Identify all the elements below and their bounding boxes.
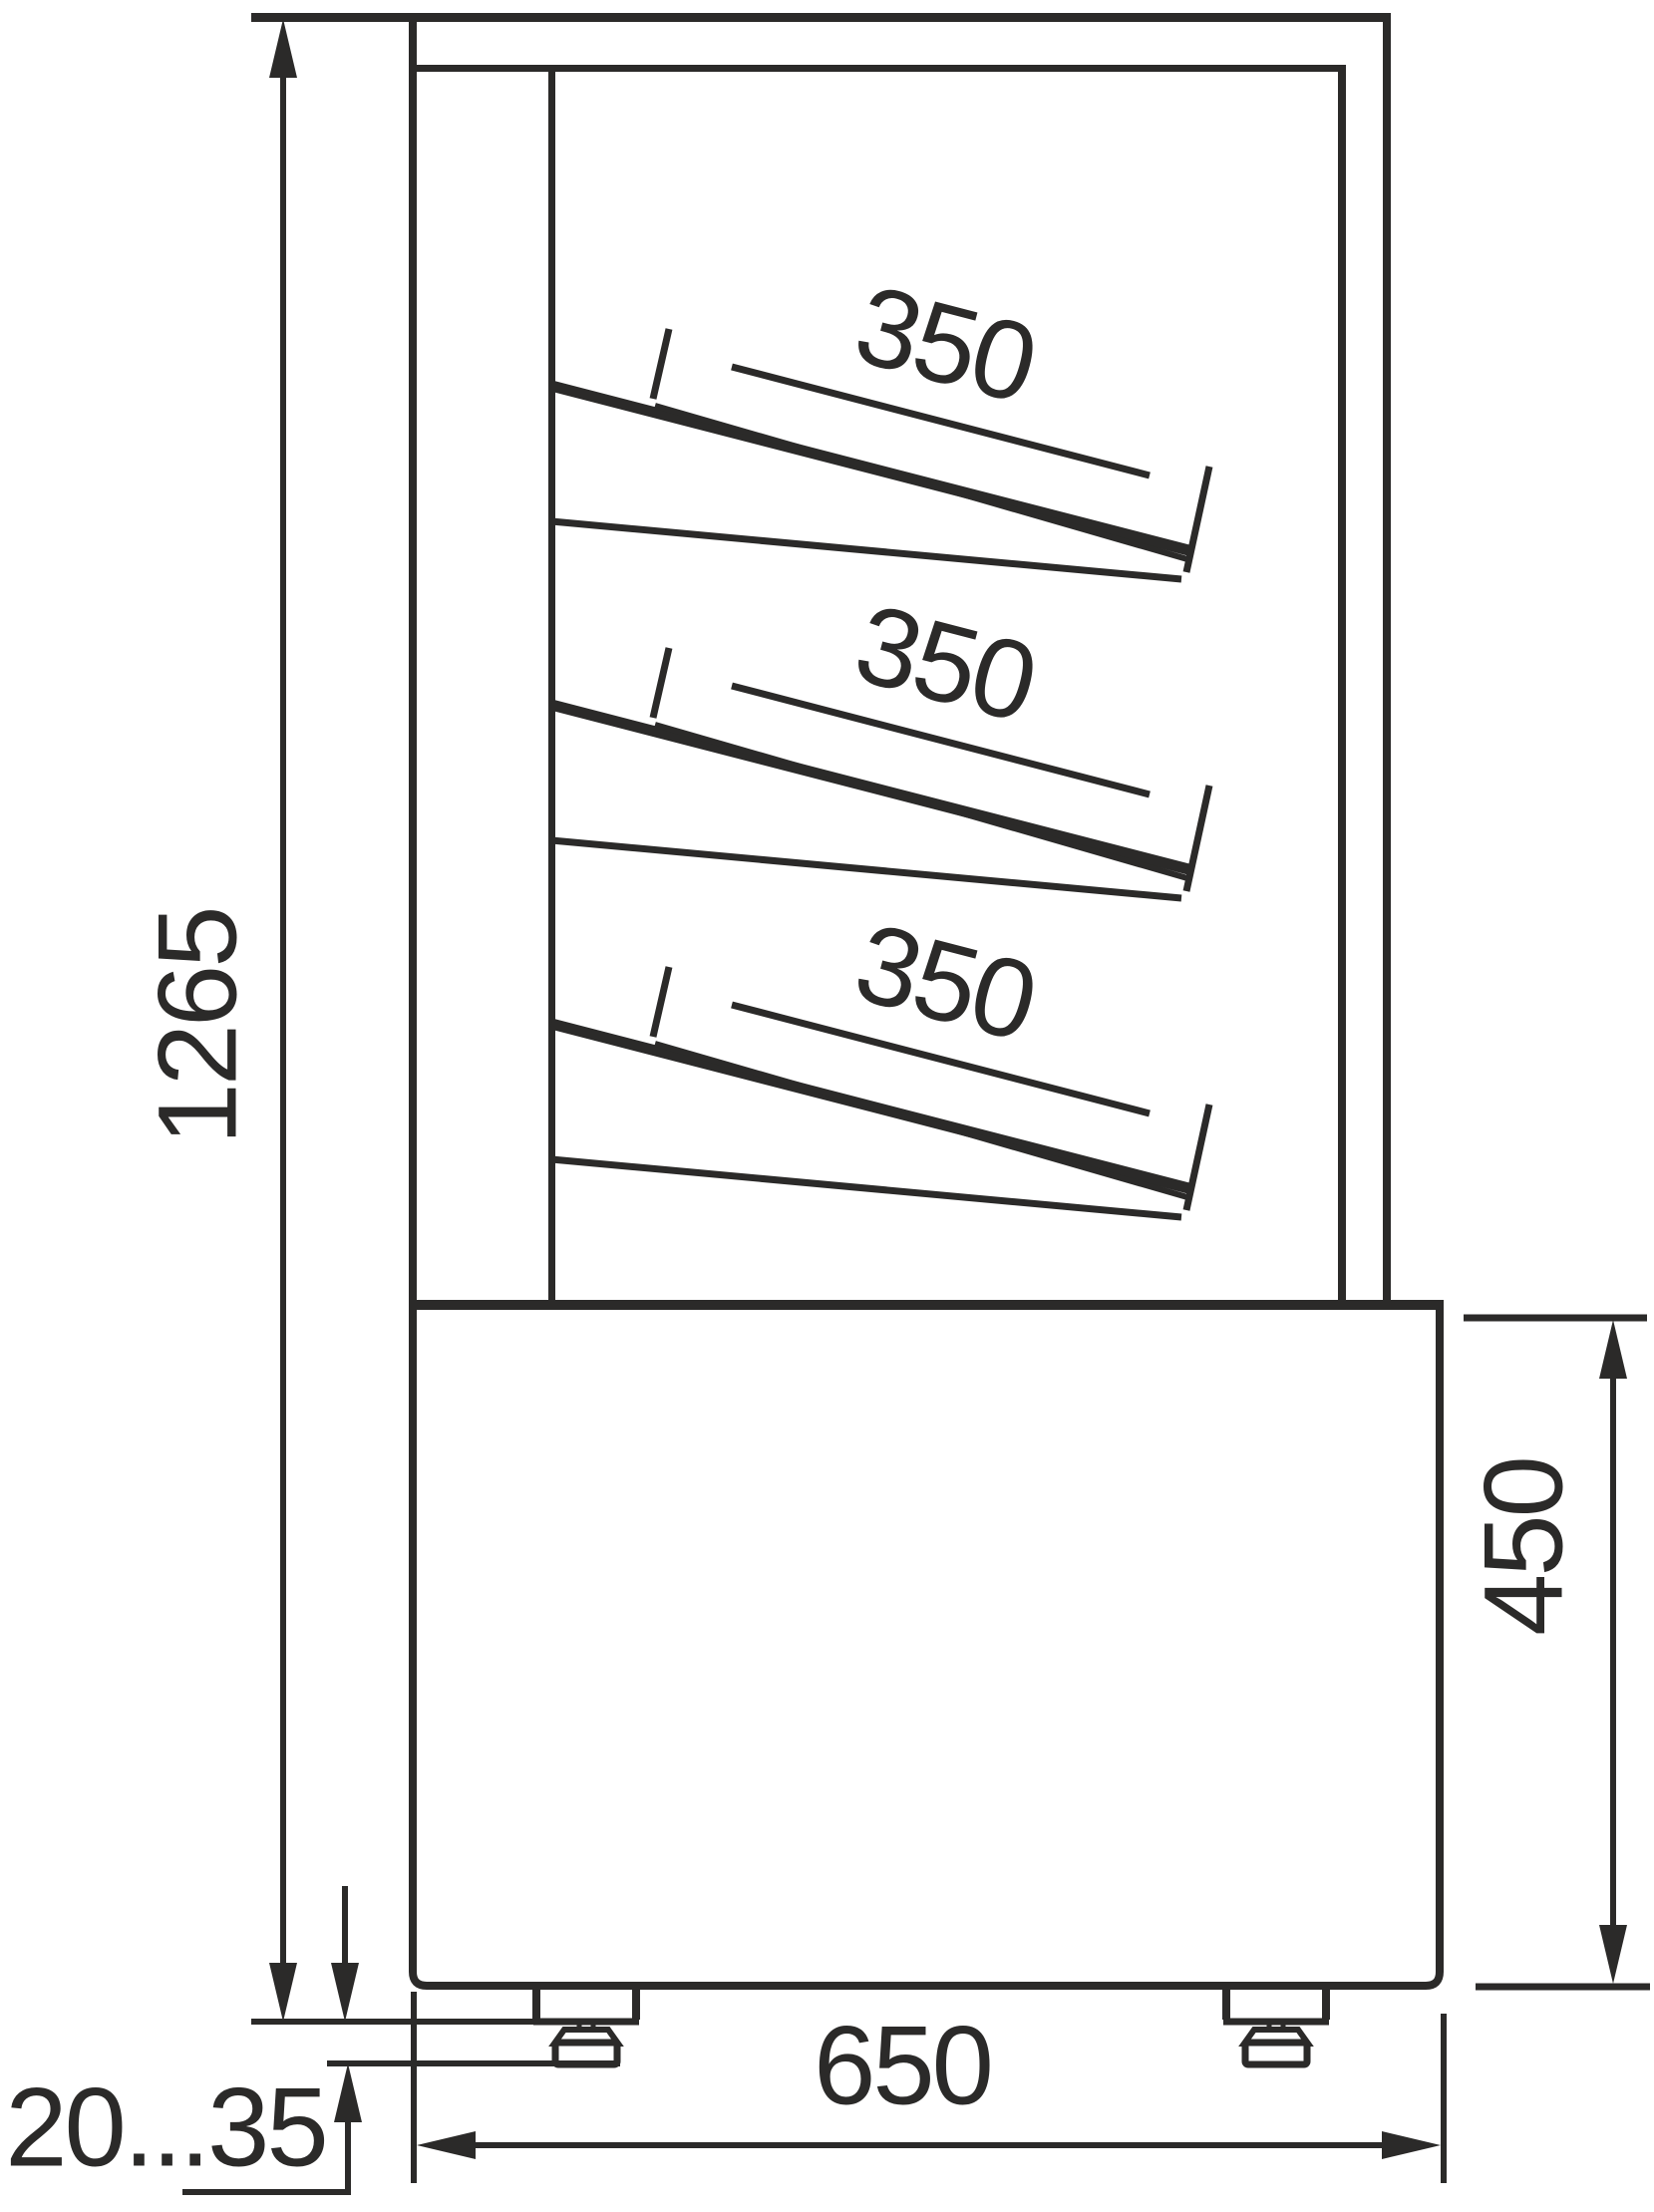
dim-base-depth-arrow-left — [417, 2131, 476, 2159]
dim-base-depth-arrow-right — [1382, 2131, 1441, 2159]
dim-base-height: 450 — [1462, 1318, 1651, 1987]
dim-overall-height-arrow-up — [269, 19, 297, 78]
dim-foot-adjustment-arrow-up — [334, 2063, 362, 2122]
shelf-3-dim-tick-right — [1186, 1105, 1209, 1210]
dim-overall-height-arrow-down — [269, 1963, 297, 2022]
shelf-2-dim-tick-left — [653, 648, 669, 718]
base-cabinet-outline — [413, 1306, 1440, 1986]
adjustable-foot-left — [533, 1988, 639, 2064]
shelf-2-dim-tick-right — [1186, 786, 1209, 891]
overall-height-label: 1265 — [136, 908, 260, 1144]
dim-base-height-arrow-up — [1599, 1320, 1627, 1379]
dim-foot-adjustment-arrow-down — [331, 1963, 359, 2022]
base-depth-label: 650 — [814, 2004, 991, 2128]
dim-base-height-arrow-down — [1599, 1925, 1627, 1984]
cabinet-upper-section — [251, 13, 1391, 1305]
shelf-1-dim-tick-right — [1186, 467, 1209, 572]
shelf-1-dim-tick-left — [653, 329, 669, 399]
adjustable-foot-right — [1223, 1988, 1329, 2064]
shelf-1: 350 — [551, 261, 1209, 579]
display-case-drawing-canvas: 350 350 350 — [0, 0, 1654, 2212]
shelf-3: 350 — [551, 899, 1209, 1217]
shelf-2: 350 — [551, 580, 1209, 898]
shelf-3-dim-tick-left — [653, 967, 669, 1037]
base-cabinet — [409, 1305, 1444, 1986]
dimension-drawing-page: 350 350 350 — [0, 0, 1654, 2212]
foot-adjustment-label: 20...35 — [5, 2065, 326, 2190]
foot-right-pad — [1245, 2043, 1307, 2064]
base-height-label: 450 — [1462, 1458, 1586, 1636]
